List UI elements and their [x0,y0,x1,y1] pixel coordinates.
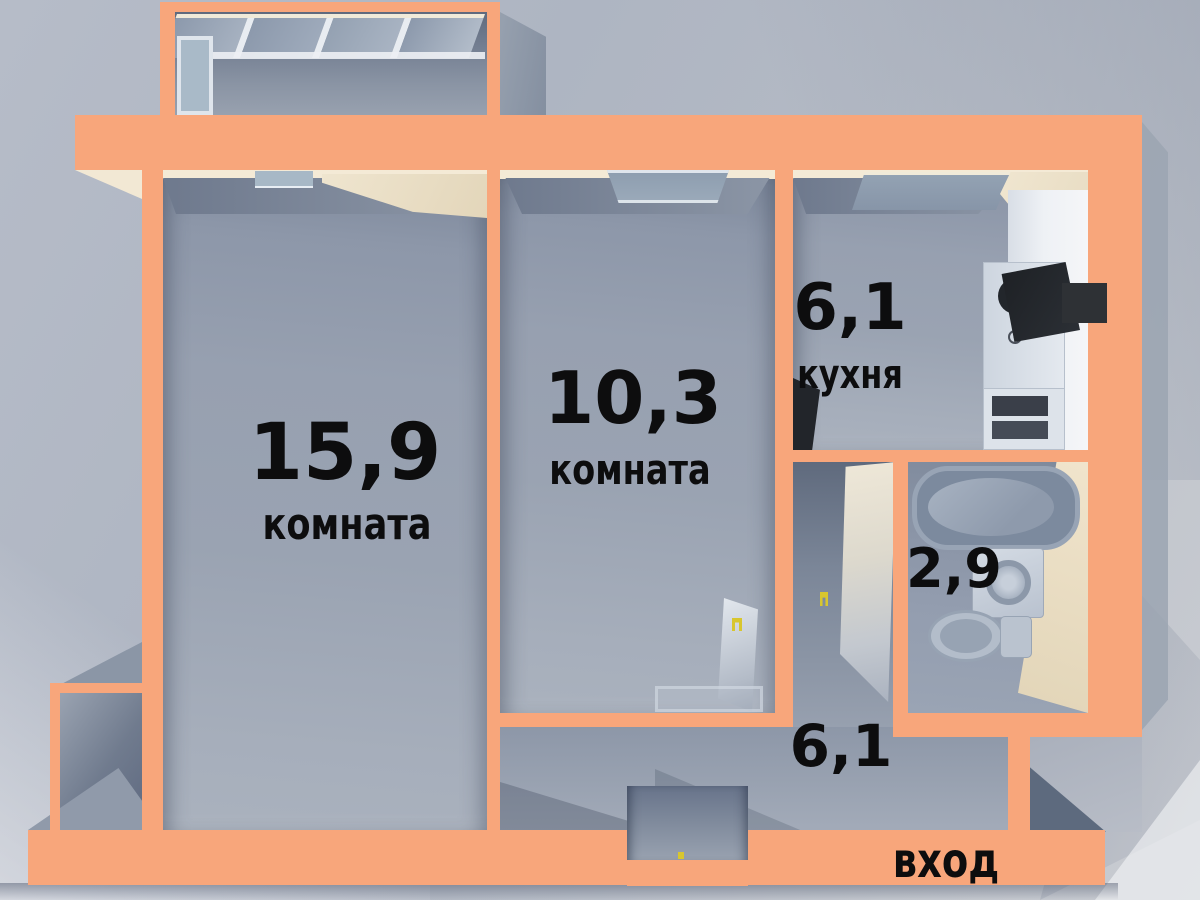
label-living-area: 15,9 [249,414,441,492]
label-bedroom-area: 10,3 [544,362,722,434]
label-bathroom-area: 2,9 [906,542,1002,596]
room-bedroom-window [603,170,733,203]
balcony-exterior-side [500,12,546,115]
balcony-left-window [177,36,213,115]
wall-bedroom-bottom [500,713,787,727]
label-living-name: комната [262,503,431,547]
wall-top [75,115,1142,170]
niche-wall-top [50,683,142,693]
wall-bottom-left [28,830,627,885]
wall-right [1088,115,1142,727]
room-bedroom-floor-step [655,686,763,712]
label-kitchen-name: кухня [797,355,903,395]
balcony-wall-top [160,2,500,12]
label-bedroom-name: комната [549,449,710,491]
kitchen-shelf-slot [992,421,1048,439]
room-living-window [255,171,313,188]
toilet-seat [940,619,992,653]
kitchen-shelf-slot [992,396,1048,416]
wall-kitchen-bathroom [793,450,1142,462]
label-kitchen-area: 6,1 [793,276,906,340]
floorplan-canvas: 15,9 комната 10,3 комната 6,1 кухня 2,9 … [0,0,1200,900]
entrance-door-recess [627,786,748,862]
wall-porch [1008,727,1030,830]
wall-left [142,170,163,835]
toilet-tank [1000,616,1032,658]
wall-entrance-recess [627,860,748,886]
wall-living-bedroom [487,170,500,832]
balcony-rail-sill [177,52,485,59]
kitchen-hood-duct [1062,283,1107,323]
balcony-wall-left [160,2,175,115]
entrance-door-handle [678,852,684,859]
room-kitchen-window [852,172,1012,210]
bathtub-basin [928,478,1054,536]
wall-bedroom-kitchen [775,170,793,727]
label-hallway-area: 6,1 [790,717,893,775]
building-side-face [1142,122,1168,730]
label-entrance: вход [893,837,999,885]
balcony-wall-right [487,2,500,115]
niche-wall-left [50,683,60,830]
